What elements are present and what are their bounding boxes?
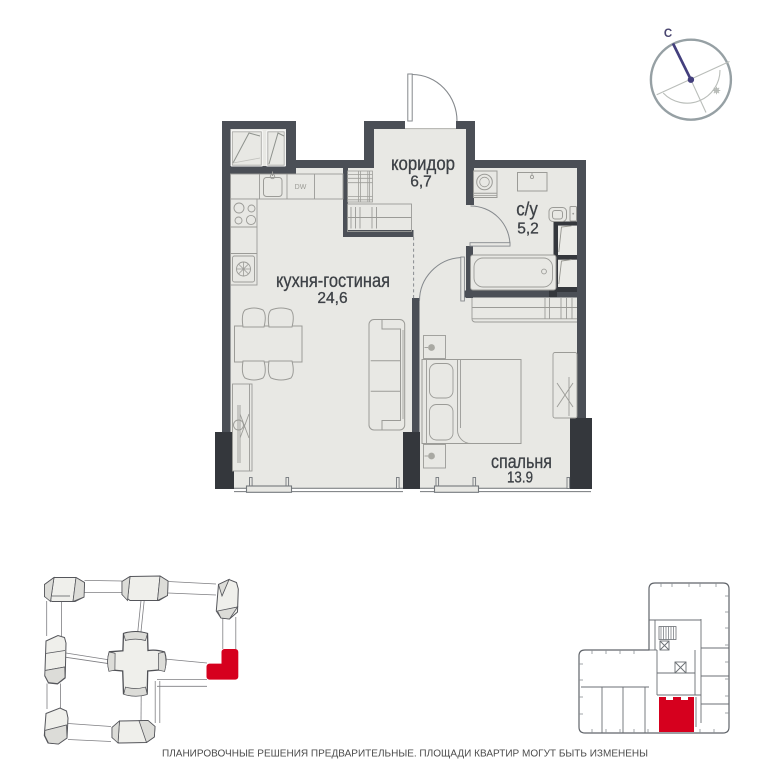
svg-text:кухня-гостиная: кухня-гостиная	[276, 271, 390, 292]
svg-text:DW: DW	[295, 184, 307, 191]
svg-text:коридор: коридор	[391, 154, 455, 175]
svg-text:с/у: с/у	[516, 200, 538, 221]
svg-text:С: С	[664, 28, 672, 40]
svg-text:13.9: 13.9	[507, 470, 533, 487]
svg-text:24,6: 24,6	[317, 290, 347, 307]
svg-text:6,7: 6,7	[410, 174, 432, 191]
svg-text:ПЛАНИРОВОЧНЫЕ РЕШЕНИЯ ПРЕДВАРИ: ПЛАНИРОВОЧНЫЕ РЕШЕНИЯ ПРЕДВАРИТЕЛЬНЫЕ. П…	[162, 749, 648, 760]
svg-text:5,2: 5,2	[517, 221, 539, 238]
